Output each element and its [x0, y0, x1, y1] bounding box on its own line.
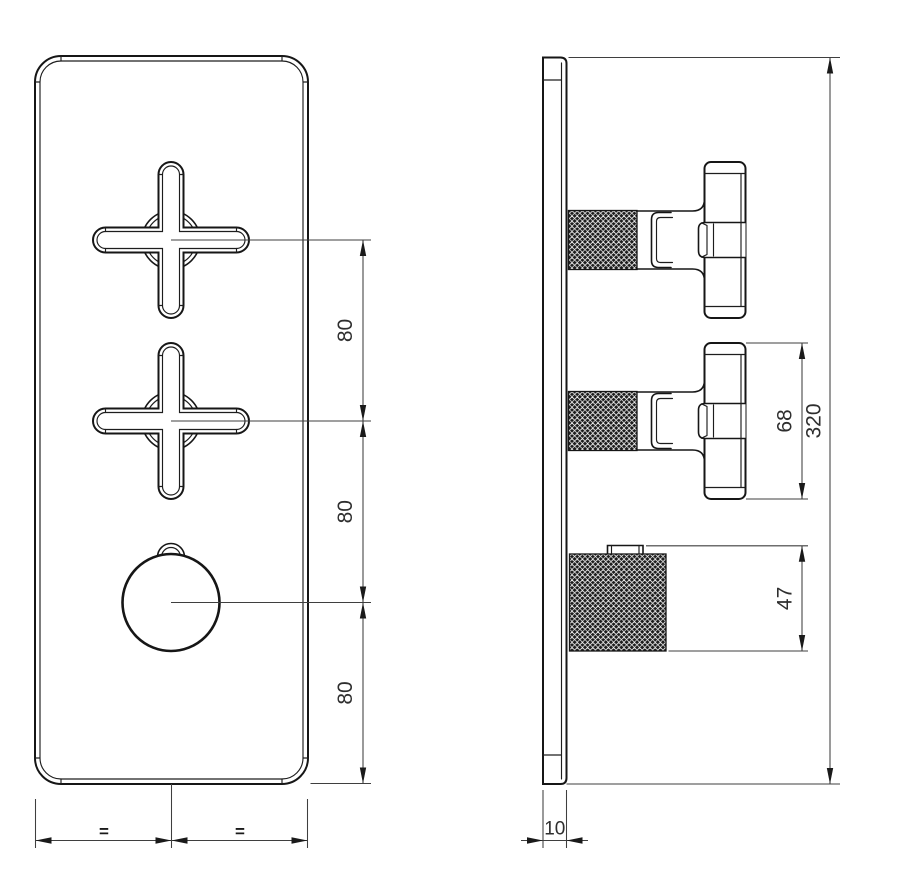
dim-47: 47 [646, 546, 808, 651]
arrow-left [36, 837, 52, 843]
arrow-left [172, 837, 188, 843]
arrow-down [360, 768, 366, 784]
dim-10: 10 [521, 790, 588, 848]
plate-side-profile [543, 58, 567, 785]
dim-chain-80: 80 80 80 [334, 240, 366, 784]
arrow-up [360, 240, 366, 256]
arrow-right [527, 837, 543, 843]
arrow-up [360, 603, 366, 619]
side-handle-middle [569, 343, 746, 499]
knob-knurl-side [570, 554, 667, 651]
arrow-down [799, 483, 805, 499]
arrow-down [827, 768, 833, 784]
dim-equal-bottom: = = [36, 784, 308, 848]
arrow-down [799, 635, 805, 651]
dim-label-knob-height: 47 [774, 587, 797, 610]
front-view [35, 56, 308, 784]
knob-front [123, 544, 220, 652]
dim-label-plate-thickness: 10 [544, 819, 565, 840]
side-handle-top [569, 162, 746, 318]
arrow-left [567, 837, 583, 843]
arrow-up [360, 421, 366, 437]
dim-label-equal-right: = [235, 822, 245, 841]
arrow-up [799, 343, 805, 359]
dim-label-spacing-top: 80 [334, 319, 357, 342]
arrow-right [292, 837, 308, 843]
dim-equal-extension-lines [36, 784, 308, 848]
side-knob [570, 546, 667, 652]
technical-drawing: 80 80 80 = = 320 6 [0, 0, 909, 890]
knob-indicator-stub [608, 546, 644, 555]
arrow-up [827, 58, 833, 74]
dim-68: 68 [746, 343, 808, 499]
side-view [543, 58, 746, 785]
dim-label-equal-left: = [99, 822, 109, 841]
dim-label-cross-span: 68 [774, 409, 797, 432]
arrow-down [360, 405, 366, 421]
drawing-sheet: 80 80 80 = = 320 6 [0, 0, 909, 890]
dim-label-overall-height: 320 [803, 403, 826, 438]
arrow-down [360, 587, 366, 603]
arrow-up [799, 546, 805, 562]
dim-label-spacing-middle: 80 [334, 500, 357, 523]
dim-label-spacing-bottom: 80 [334, 681, 357, 704]
arrow-right [156, 837, 172, 843]
